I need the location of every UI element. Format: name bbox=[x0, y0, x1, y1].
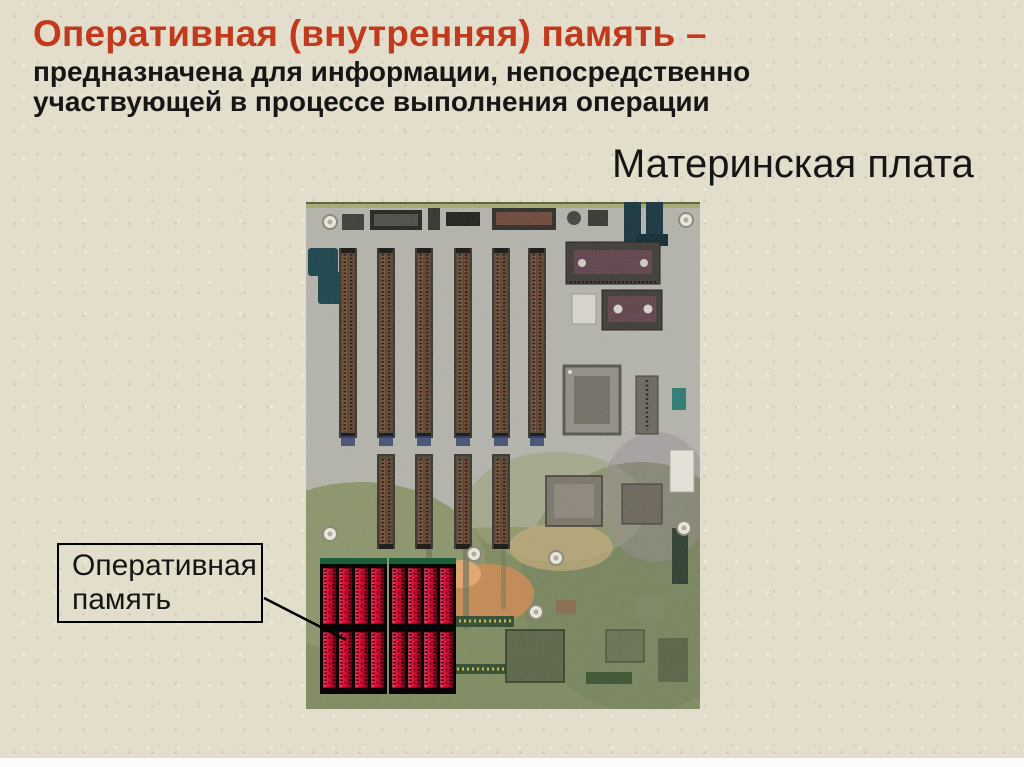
slide-subtitle: предназначена для информации, непосредст… bbox=[33, 57, 813, 117]
callout-label: Оперативная память bbox=[72, 549, 257, 616]
callout-box: Оперативная память bbox=[57, 543, 263, 623]
ram-module bbox=[392, 632, 405, 688]
ram-module bbox=[392, 568, 405, 624]
ram-module bbox=[339, 632, 352, 688]
ram-module bbox=[424, 568, 437, 624]
slide: Оперативная (внутренняя) память – предна… bbox=[0, 0, 1024, 767]
ram-module bbox=[408, 632, 421, 688]
subtitle-line-1: предназначена для информации, непосредст… bbox=[33, 57, 813, 87]
ram-module bbox=[339, 568, 352, 624]
bottom-white-strip bbox=[0, 758, 1024, 767]
image-caption: Материнская плата bbox=[612, 142, 974, 187]
ram-module bbox=[355, 632, 368, 688]
ram-module bbox=[440, 568, 453, 624]
ram-module bbox=[323, 568, 336, 624]
motherboard-photo bbox=[306, 202, 700, 709]
ram-module bbox=[440, 632, 453, 688]
ram-module bbox=[408, 568, 421, 624]
ram-module bbox=[355, 568, 368, 624]
ram-module bbox=[323, 632, 336, 688]
ram-module bbox=[424, 632, 437, 688]
ram-module bbox=[371, 632, 384, 688]
slide-title: Оперативная (внутренняя) память – bbox=[33, 13, 963, 55]
motherboard-illustration bbox=[306, 202, 700, 709]
ram-module bbox=[371, 568, 384, 624]
subtitle-line-2: участвующей в процессе выполнения операц… bbox=[33, 87, 813, 117]
